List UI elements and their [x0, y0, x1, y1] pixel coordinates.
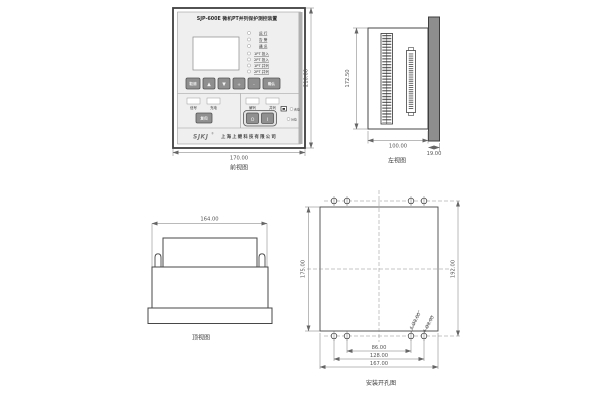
dim-label: 170.00: [230, 156, 248, 162]
comm-port-pin-icon: [283, 108, 286, 110]
lcd-screen: [193, 37, 239, 70]
side-panel-dimension: 19.00: [427, 143, 442, 157]
confirm-key-label: 确认: [268, 81, 276, 86]
down-arrow-icon: ▼: [222, 83, 226, 88]
top-main-body: [152, 267, 268, 308]
led-1pt-in-icon: [247, 52, 250, 55]
off-button-label: O: [251, 117, 255, 123]
right-clip: [259, 254, 265, 267]
brand-logo: SJKJ: [193, 134, 209, 141]
side-view-caption: 左视图: [388, 157, 406, 165]
technical-drawing: SJP-600E 微机PT并列保护测控装置 运 行 告 警 通 讯 1PT 投入…: [0, 0, 600, 400]
drill-view-caption: 安装开孔图: [366, 379, 396, 387]
reset-button-label: 复归: [199, 116, 208, 121]
dim-label: 100.00: [389, 144, 407, 150]
drawing-svg: SJP-600E 微机PT并列保护测控装置 运 行 告 警 通 讯 1PT 投入…: [0, 0, 600, 400]
charge-window: [207, 98, 220, 104]
top-view: 164.00 顶视图: [148, 217, 272, 342]
dim-label: 86.00: [372, 345, 387, 351]
registered-mark-icon: ®: [211, 132, 214, 136]
dim-label: 164.00: [200, 217, 218, 223]
front-view-caption: 前视图: [230, 164, 248, 172]
top-rear-body: [163, 238, 257, 267]
front-view: SJP-600E 微机PT并列保护测控装置 运 行 告 警 通 讯 1PT 投入…: [173, 8, 314, 172]
key-row: 取消 ▲ ▼ + - 确认: [186, 78, 280, 89]
charge-window-label: 充电: [210, 105, 217, 110]
hole-span-dimension: 192.00: [451, 201, 459, 336]
led-label: 2PT 并列: [254, 69, 269, 74]
left-clip: [155, 254, 161, 267]
open-led-icon: [287, 118, 290, 121]
plus-icon: +: [237, 82, 241, 88]
side-height-dimension: 172.50: [345, 28, 368, 129]
dim-label: 192.00: [451, 260, 457, 278]
front-width-dimension: 170.00: [173, 149, 305, 162]
dim-label: 175.00: [301, 260, 307, 278]
top-view-caption: 顶视图: [192, 334, 210, 342]
hole-diameter-notes: 4-Ø8.00 4-Ø8.00: [408, 310, 436, 334]
closed-led-icon: [290, 108, 293, 111]
company-name: 上海上继科技有限公司: [221, 133, 277, 140]
led-alarm-icon: [247, 38, 250, 41]
signal-window: [187, 98, 200, 104]
dim-label: 210.00: [304, 69, 310, 87]
led-label: 1PT 并列: [254, 63, 269, 68]
led-2pt-in-icon: [247, 58, 250, 61]
led-label: 2PT 投入: [254, 57, 269, 62]
device-title: SJP-600E 微机PT并列保护测控装置: [197, 15, 278, 22]
side-body: [368, 28, 428, 129]
front-panel-side-strip: [299, 12, 303, 144]
led-run-icon: [247, 31, 250, 34]
dim-label: 172.50: [345, 69, 351, 87]
dim-label: 19.00: [427, 151, 442, 157]
cancel-key-label: 取消: [189, 81, 197, 86]
parallel-window: [266, 98, 279, 104]
led-1pt-par-icon: [247, 64, 250, 67]
side-depth-dimension: 100.00: [368, 131, 428, 150]
split-window: [246, 98, 259, 104]
side-front-flange: [429, 17, 440, 141]
led-label: 运 行: [259, 31, 268, 36]
open-led-label: 分位: [291, 117, 297, 122]
led-2pt-par-icon: [247, 70, 250, 73]
bottom-dimensions: 86.00 128.00 167.00: [320, 333, 438, 369]
up-arrow-icon: ▲: [207, 83, 211, 88]
split-window-label: 解列: [249, 105, 256, 110]
led-comm-icon: [247, 44, 250, 47]
on-button-label: I: [267, 117, 268, 123]
drill-view: 175.00 192.00 86.00 128.00 167.00 4-Ø: [301, 190, 461, 387]
left-side-view: 172.50 100.00 19.00 左视图: [345, 17, 441, 165]
parallel-window-label: 并列: [269, 105, 276, 110]
led-label: 告 警: [259, 37, 268, 42]
led-label: 1PT 投入: [254, 51, 269, 56]
closed-led-label: 合位: [294, 107, 300, 112]
top-front-bezel: [148, 308, 272, 324]
led-label: 通 讯: [259, 44, 268, 49]
dim-label: 128.00: [370, 353, 388, 359]
dim-label: 167.00: [370, 361, 388, 367]
signal-window-label: 信号: [190, 105, 197, 110]
hole-note: 4-Ø8.00: [408, 311, 423, 331]
